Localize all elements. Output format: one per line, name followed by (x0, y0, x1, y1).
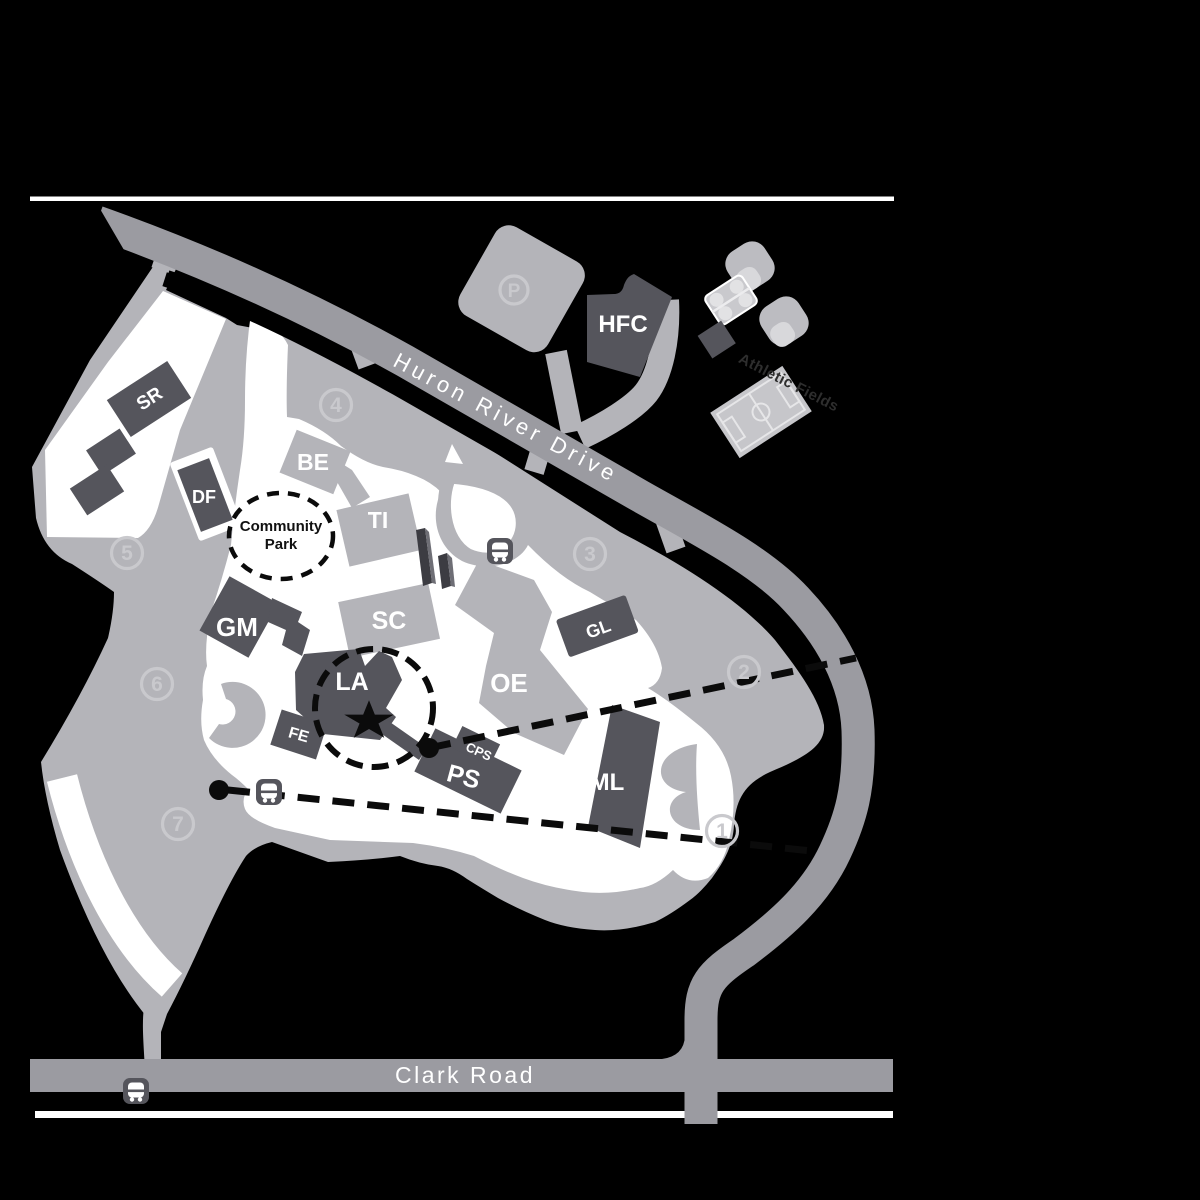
svg-text:Community: Community (240, 518, 323, 535)
svg-text:DF: DF (192, 487, 216, 507)
svg-text:6: 6 (151, 673, 163, 696)
svg-text:TI: TI (368, 507, 388, 533)
svg-text:Clark Road: Clark Road (395, 1062, 535, 1088)
svg-text:SC: SC (372, 607, 407, 635)
svg-text:GM: GM (216, 612, 258, 642)
svg-text:3: 3 (584, 543, 596, 566)
svg-text:4: 4 (330, 394, 342, 417)
svg-text:HFC: HFC (598, 311, 647, 338)
svg-text:OE: OE (490, 668, 528, 698)
svg-text:ML: ML (590, 769, 625, 796)
svg-text:BE: BE (297, 449, 329, 475)
svg-text:1: 1 (716, 820, 728, 843)
svg-text:2: 2 (738, 661, 750, 684)
svg-text:5: 5 (121, 542, 133, 565)
svg-text:P: P (508, 281, 521, 302)
svg-text:Park: Park (265, 536, 298, 553)
svg-text:7: 7 (172, 813, 184, 836)
svg-text:LA: LA (335, 668, 368, 696)
